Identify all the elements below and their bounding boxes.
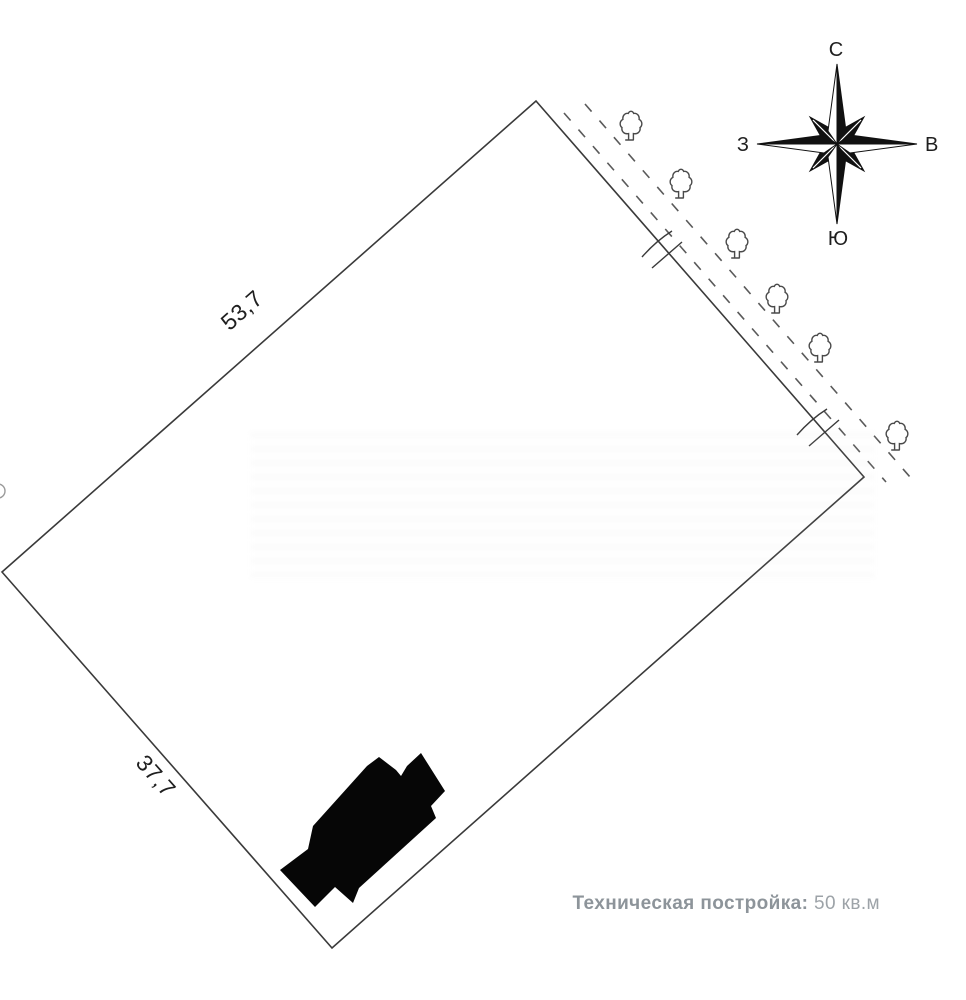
tree-icon: [726, 229, 748, 258]
compass-letter-west: З: [737, 134, 749, 156]
tree-icon: [766, 284, 788, 313]
parcel-boundary: [2, 101, 864, 948]
compass-main-points: [757, 64, 917, 224]
compass-letter-south: Ю: [828, 228, 848, 250]
tree-icon: [620, 111, 642, 140]
site-plan: 53,7 37,7: [0, 0, 966, 1000]
compass-letter-east: В: [925, 134, 938, 156]
tree-icon: [670, 169, 692, 198]
compass-rose: С В Ю З: [737, 39, 938, 250]
building-caption-value: 50 кв.м: [814, 893, 880, 914]
building-caption-label: Техническая постройка:: [572, 893, 808, 914]
dimension-label-53-7: 53,7: [216, 285, 268, 335]
survey-point-circle: [0, 484, 5, 498]
tree-icon: [886, 421, 908, 450]
building-caption: Техническая постройка: 50 кв.м: [572, 893, 880, 915]
site-plan-drawing: 53,7 37,7: [0, 0, 966, 1000]
compass-letter-north: С: [829, 39, 843, 61]
tree-icon: [809, 333, 831, 362]
